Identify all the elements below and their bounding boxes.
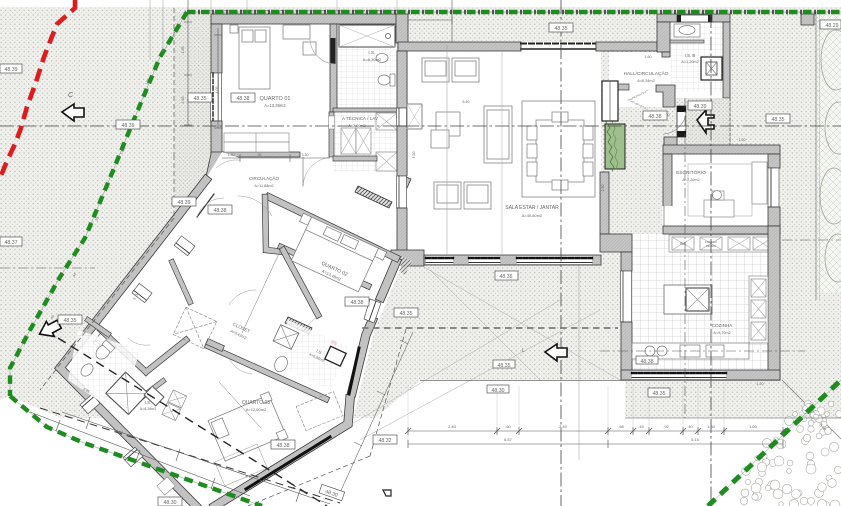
svg-text:48.35: 48.35 (555, 26, 568, 32)
svg-text:48.35: 48.35 (400, 311, 413, 317)
svg-text:SALA ESTAR / JANTAR: SALA ESTAR / JANTAR (505, 205, 559, 211)
svg-text:PAC: PAC (680, 242, 687, 246)
svg-text:48.39: 48.39 (694, 104, 707, 110)
svg-text:QUARTO 03: QUARTO 03 (242, 400, 270, 406)
svg-text:.43: .43 (638, 424, 644, 429)
svg-text:48.38: 48.38 (277, 443, 290, 449)
svg-text:I.S.: I.S. (368, 50, 375, 56)
svg-text:48.35: 48.35 (498, 363, 511, 369)
svg-text:48.32: 48.32 (379, 438, 392, 444)
svg-text:I.S. B: I.S. B (685, 53, 696, 58)
svg-text:A=6,30m2: A=6,30m2 (363, 57, 382, 62)
svg-text:48.38: 48.38 (351, 300, 364, 306)
svg-text:3.30: 3.30 (302, 153, 309, 157)
svg-text:ESCRITÓRIO: ESCRITÓRIO (676, 169, 706, 176)
svg-text:.92: .92 (663, 424, 669, 429)
svg-text:48.36: 48.36 (500, 274, 513, 280)
svg-text:48.39: 48.39 (5, 67, 18, 73)
svg-text:1.20: 1.20 (757, 382, 764, 386)
svg-text:48.38: 48.38 (641, 359, 654, 365)
svg-text:2.40: 2.40 (559, 424, 568, 429)
svg-text:2.40: 2.40 (448, 424, 457, 429)
svg-text:48.35: 48.35 (772, 117, 785, 123)
svg-text:48.39: 48.39 (122, 123, 135, 129)
svg-text:1.95: 1.95 (181, 47, 185, 54)
svg-text:48.39: 48.39 (178, 200, 191, 206)
svg-text:48.29: 48.29 (826, 23, 839, 29)
svg-text:6.57: 6.57 (504, 437, 513, 442)
svg-text:A=11,88m2: A=11,88m2 (254, 184, 273, 188)
svg-text:L: L (522, 348, 525, 354)
svg-text:1.60: 1.60 (749, 424, 758, 429)
svg-text:48.38: 48.38 (649, 114, 662, 120)
svg-text:1.60: 1.60 (645, 55, 652, 59)
svg-text:A=8,34m2: A=8,34m2 (637, 79, 654, 83)
svg-text:48.37: 48.37 (5, 240, 18, 246)
svg-text:5.15: 5.15 (691, 437, 700, 442)
svg-text:1.30: 1.30 (228, 153, 235, 157)
svg-text:48.30: 48.30 (492, 388, 505, 394)
svg-text:A=7,20m2: A=7,20m2 (682, 178, 699, 182)
svg-text:1.80: 1.80 (707, 424, 716, 429)
svg-text:A=9,70m2: A=9,70m2 (713, 331, 730, 335)
svg-text:6.40: 6.40 (463, 100, 470, 104)
svg-text:4.65: 4.65 (181, 97, 185, 104)
svg-text:48.38: 48.38 (237, 96, 250, 102)
svg-text:CIRCULAÇÃO: CIRCULAÇÃO (249, 175, 280, 181)
svg-text:.60: .60 (505, 424, 511, 429)
svg-text:HALL/CIRCULAÇÃO: HALL/CIRCULAÇÃO (624, 70, 669, 77)
svg-text:1.50: 1.50 (601, 185, 605, 192)
svg-text:COZINHA: COZINHA (712, 323, 734, 328)
svg-text:4.50: 4.50 (412, 152, 416, 159)
svg-text:4.05: 4.05 (215, 87, 219, 94)
svg-text:48.38: 48.38 (214, 208, 227, 214)
svg-text:QUARTO 01: QUARTO 01 (260, 96, 291, 102)
svg-text:48.35: 48.35 (653, 391, 666, 397)
svg-text:48.30: 48.30 (164, 500, 177, 506)
svg-text:MICRO: MICRO (706, 244, 717, 248)
svg-text:A=12,60m2: A=12,60m2 (246, 407, 267, 412)
svg-text:48.35: 48.35 (194, 96, 207, 102)
svg-text:A=40,80m2: A=40,80m2 (522, 213, 543, 218)
svg-text:A=8,26m2: A=8,26m2 (140, 407, 156, 411)
svg-text:A=7,90m2: A=7,90m2 (348, 124, 365, 128)
svg-text:1.20: 1.20 (739, 138, 746, 142)
svg-text:48.35: 48.35 (64, 318, 77, 324)
svg-text:.35: .35 (257, 153, 262, 157)
svg-text:A=13,36m2: A=13,36m2 (264, 103, 286, 108)
svg-text:.68: .68 (618, 424, 624, 429)
svg-text:A TÉCNICA / LAV: A TÉCNICA / LAV (342, 115, 379, 121)
svg-text:.40: .40 (687, 424, 693, 429)
svg-text:A=1,20m2: A=1,20m2 (681, 60, 698, 64)
svg-text:I.S.: I.S. (145, 400, 152, 405)
